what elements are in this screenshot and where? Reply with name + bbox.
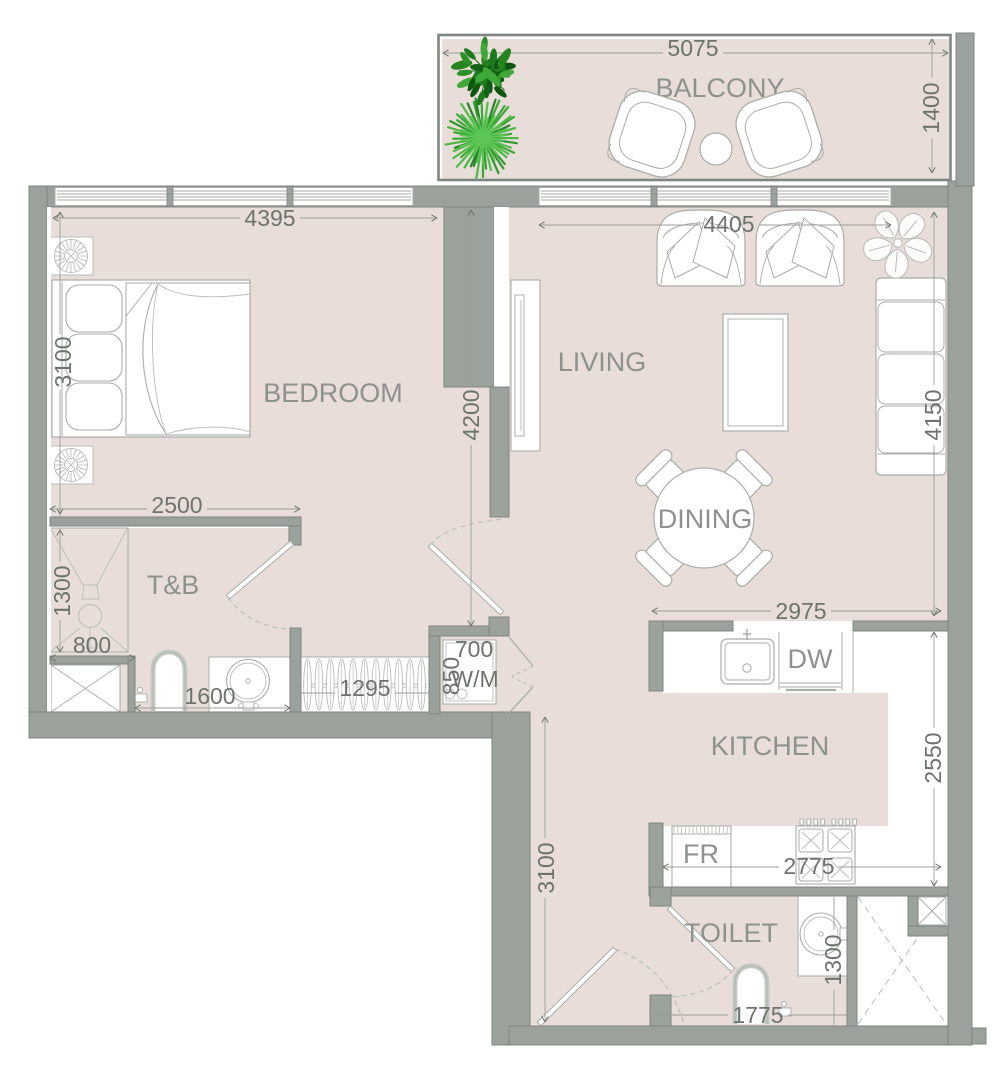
- svg-text:KITCHEN: KITCHEN: [711, 731, 830, 761]
- svg-text:3100: 3100: [533, 842, 559, 893]
- svg-text:BEDROOM: BEDROOM: [263, 378, 403, 408]
- svg-text:800: 800: [73, 632, 111, 658]
- svg-text:2775: 2775: [783, 853, 834, 879]
- svg-text:1300: 1300: [49, 565, 75, 616]
- svg-text:4150: 4150: [920, 389, 946, 440]
- svg-text:4395: 4395: [244, 205, 295, 231]
- svg-text:4405: 4405: [703, 211, 754, 237]
- svg-text:DW: DW: [788, 644, 833, 674]
- svg-text:3100: 3100: [50, 336, 76, 387]
- svg-text:FR: FR: [683, 839, 719, 869]
- svg-text:2550: 2550: [920, 732, 946, 783]
- svg-text:TOILET: TOILET: [684, 918, 778, 948]
- svg-text:5075: 5075: [667, 35, 718, 61]
- svg-text:1775: 1775: [732, 1002, 783, 1028]
- svg-text:LIVING: LIVING: [558, 347, 647, 377]
- svg-text:W/M: W/M: [451, 666, 498, 692]
- svg-text:1400: 1400: [918, 82, 944, 133]
- svg-text:DINING: DINING: [658, 504, 753, 534]
- svg-text:2500: 2500: [151, 492, 202, 518]
- svg-text:2975: 2975: [775, 598, 826, 624]
- svg-text:T&B: T&B: [147, 570, 200, 600]
- svg-text:4200: 4200: [458, 389, 484, 440]
- svg-text:1300: 1300: [820, 934, 846, 985]
- svg-text:1295: 1295: [339, 675, 390, 701]
- svg-text:1600: 1600: [184, 683, 235, 709]
